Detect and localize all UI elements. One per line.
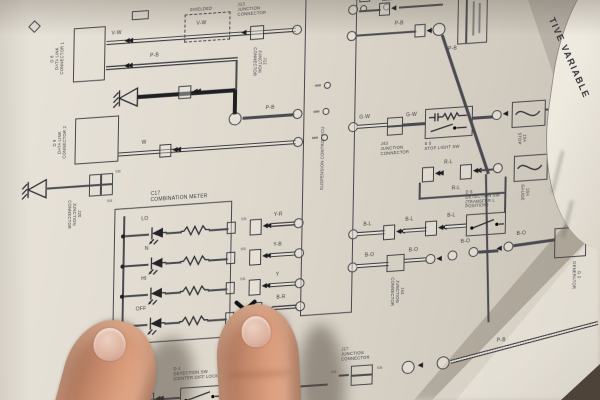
- photo-vignette: [0, 0, 600, 400]
- photographed-wiring-diagram: D 8 DATA LINK CONNECTOR 1 ◀◀ V-W SHIELDE…: [0, 0, 600, 400]
